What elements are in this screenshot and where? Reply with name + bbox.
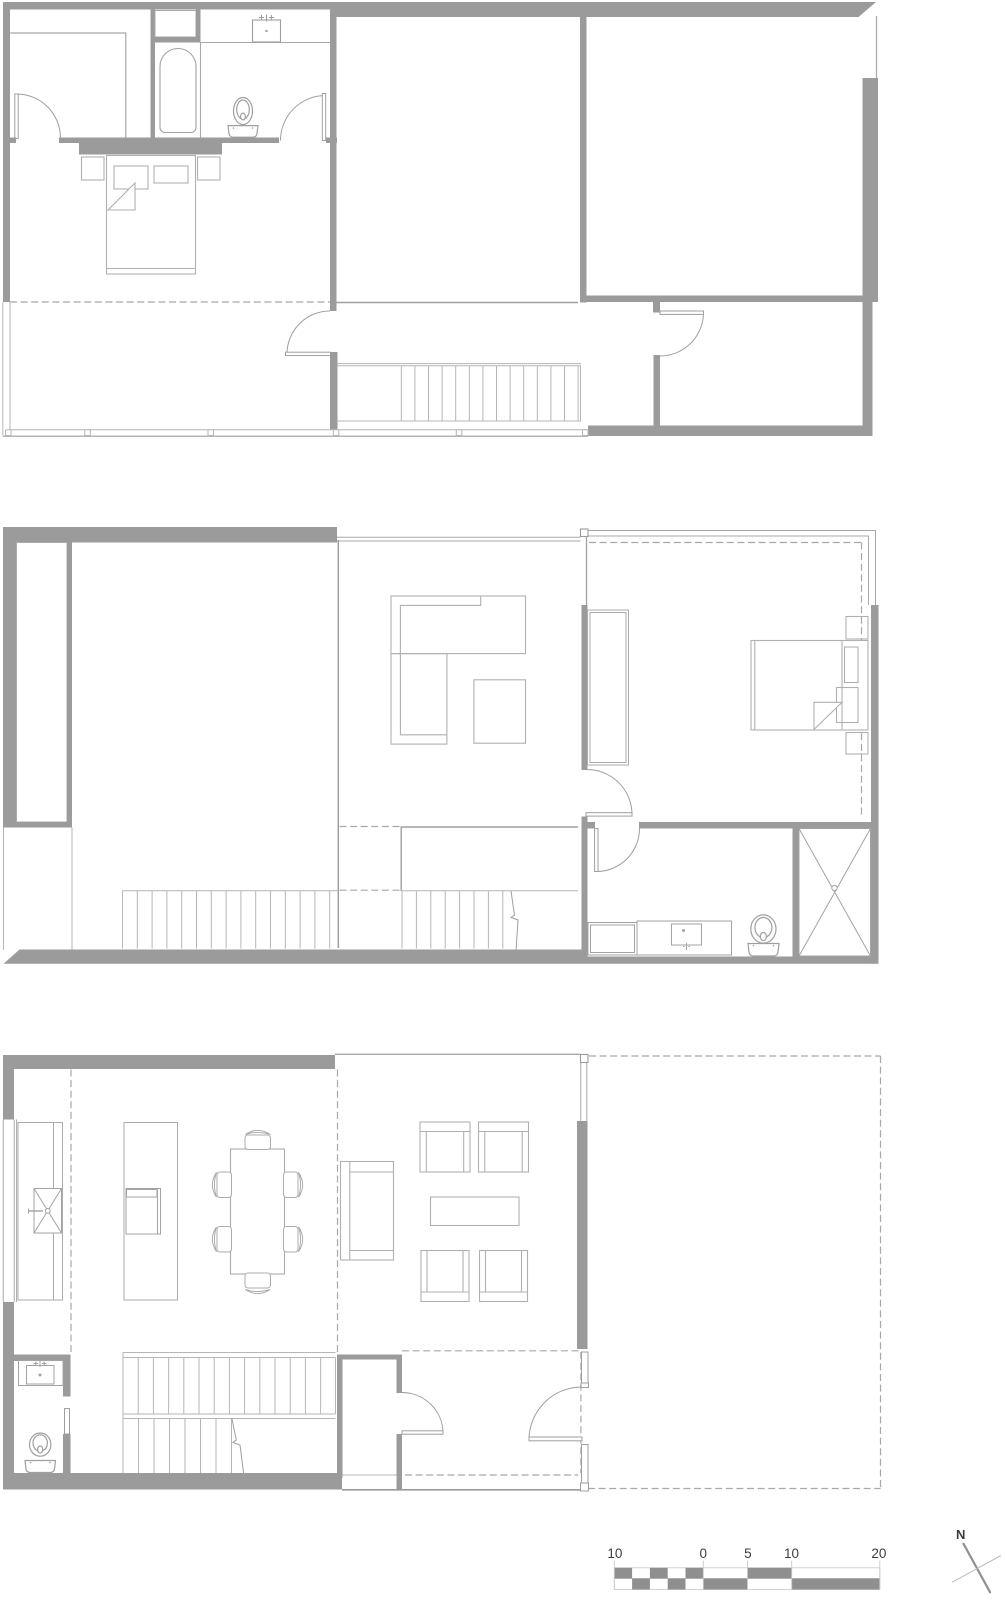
svg-text:0: 0 — [699, 1546, 707, 1561]
svg-text:10: 10 — [607, 1546, 622, 1561]
svg-text:5: 5 — [744, 1546, 752, 1561]
svg-text:20: 20 — [871, 1546, 886, 1561]
svg-text:10: 10 — [784, 1546, 799, 1561]
svg-text:N: N — [956, 1527, 965, 1542]
